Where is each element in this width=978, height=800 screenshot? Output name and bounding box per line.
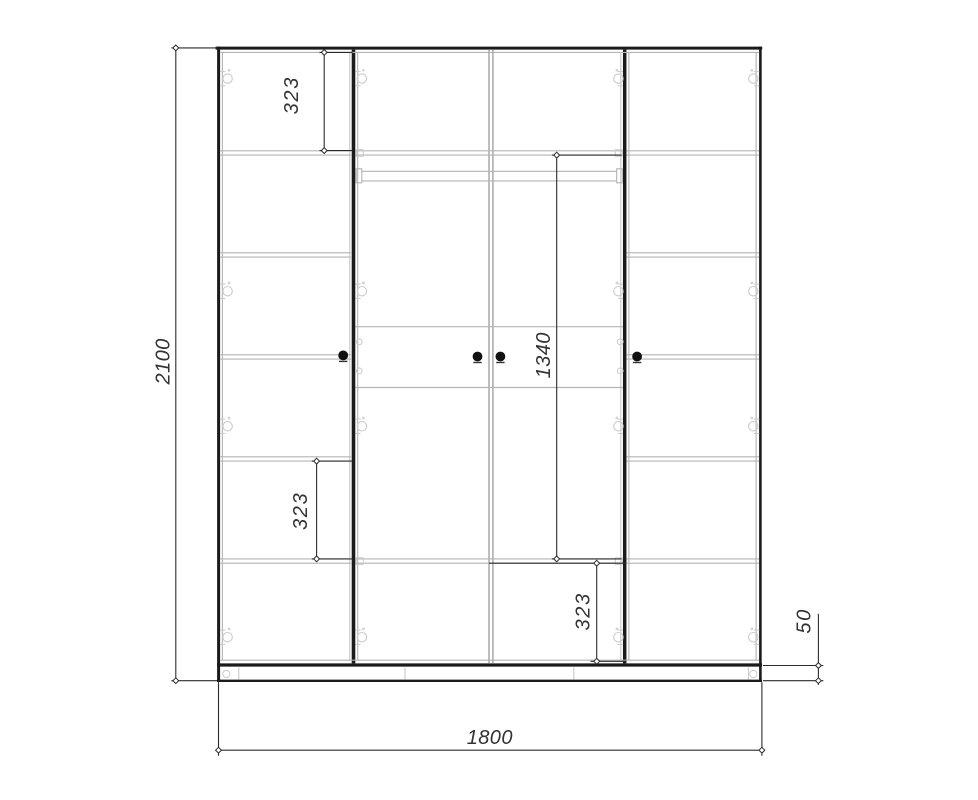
svg-text:50: 50 bbox=[793, 608, 815, 633]
svg-text:1800: 1800 bbox=[467, 727, 513, 749]
svg-text:323: 323 bbox=[290, 492, 312, 530]
svg-text:2100: 2100 bbox=[152, 338, 174, 385]
svg-text:1340: 1340 bbox=[533, 332, 555, 378]
svg-text:323: 323 bbox=[572, 592, 594, 630]
svg-text:323: 323 bbox=[281, 76, 303, 114]
